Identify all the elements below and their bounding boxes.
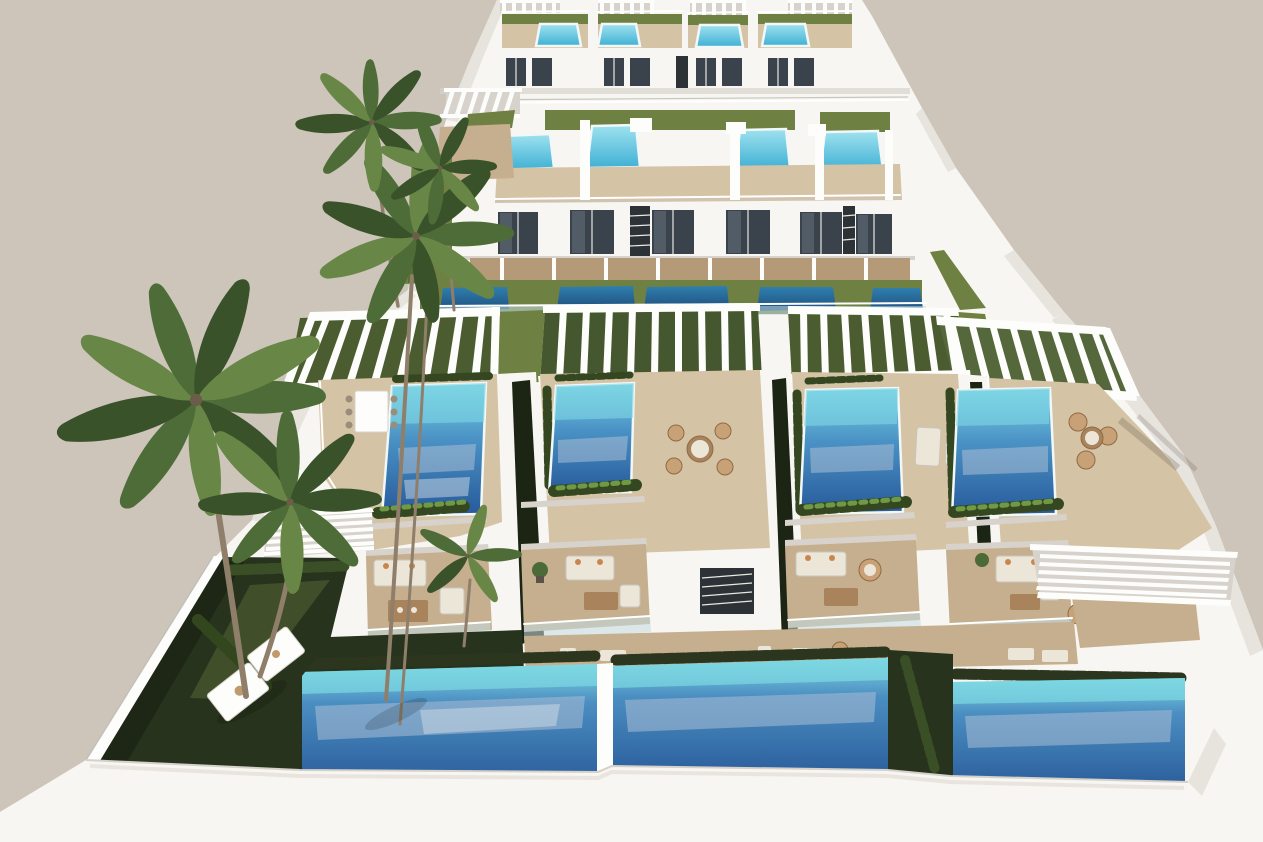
glass-slider: [856, 214, 892, 254]
roof-lawn: [820, 112, 890, 132]
rooftop-pool: [735, 129, 790, 169]
rendering-canvas: [0, 0, 1263, 842]
spiral-staircase: [676, 56, 688, 88]
glass-slider: [570, 210, 614, 254]
rooftop-pool: [536, 24, 581, 46]
potted-plant: [975, 553, 989, 567]
glass-slider: [800, 212, 842, 254]
potted-plant: [532, 562, 548, 578]
villa-complex-rendering: [0, 0, 1263, 842]
rooftop-pool: [696, 25, 743, 47]
rooftop-pool: [598, 24, 640, 46]
glass-slider: [652, 210, 694, 254]
hedge: [956, 674, 1182, 678]
hedge: [797, 394, 800, 510]
hedge: [547, 390, 549, 486]
rooftop-pool: [762, 24, 809, 46]
terrace-3: [792, 372, 972, 556]
glass-slider: [726, 210, 770, 254]
louvered-canopy: [1030, 544, 1238, 606]
pool-divider-wall: [597, 663, 613, 779]
hedge: [396, 376, 489, 379]
spiral-staircase: [630, 206, 650, 256]
spiral-staircase: [843, 206, 855, 254]
staircase: [700, 568, 754, 614]
terrace-2: [540, 370, 770, 556]
